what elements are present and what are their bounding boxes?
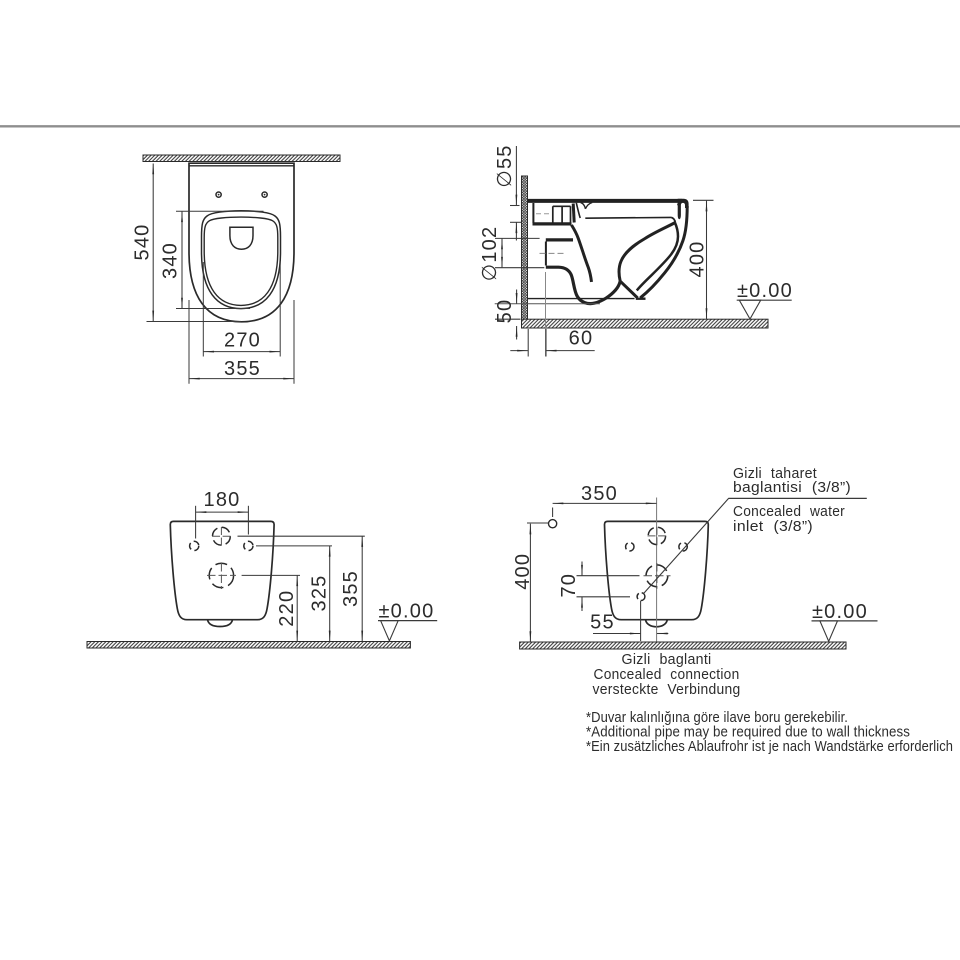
svg-text:325: 325 <box>308 575 330 612</box>
svg-text:±0.00: ±0.00 <box>379 601 435 623</box>
svg-text:355: 355 <box>224 358 261 380</box>
svg-text:*Additional pipe may be requir: *Additional pipe may be required due to … <box>586 725 910 741</box>
svg-text:340: 340 <box>160 242 182 279</box>
svg-text:60: 60 <box>569 328 594 350</box>
svg-text:*Ein zusätzliches Ablaufrohr i: *Ein zusätzliches Ablaufrohr ist je nach… <box>586 739 953 755</box>
svg-text:∅102: ∅102 <box>479 226 501 282</box>
svg-text:220: 220 <box>276 590 298 627</box>
svg-text:180: 180 <box>204 489 241 511</box>
svg-text:versteckte Verbindung: versteckte Verbindung <box>593 681 741 698</box>
svg-text:±0.00: ±0.00 <box>812 601 868 623</box>
svg-text:400: 400 <box>512 553 534 590</box>
svg-text:inlet (3/8”): inlet (3/8”) <box>733 518 813 535</box>
svg-text:50: 50 <box>494 299 516 324</box>
svg-text:*Duvar kalınlığına göre ilave: *Duvar kalınlığına göre ilave boru gerek… <box>586 710 848 726</box>
svg-text:270: 270 <box>224 330 261 352</box>
svg-text:baglantisi (3/8”): baglantisi (3/8”) <box>733 479 851 496</box>
svg-text:±0.00: ±0.00 <box>737 280 793 302</box>
svg-text:∅55: ∅55 <box>494 144 516 187</box>
svg-text:540: 540 <box>132 224 154 261</box>
svg-text:55: 55 <box>590 611 615 633</box>
svg-text:355: 355 <box>340 570 362 607</box>
svg-text:350: 350 <box>581 483 618 505</box>
svg-text:70: 70 <box>558 573 580 598</box>
svg-text:400: 400 <box>687 241 709 278</box>
